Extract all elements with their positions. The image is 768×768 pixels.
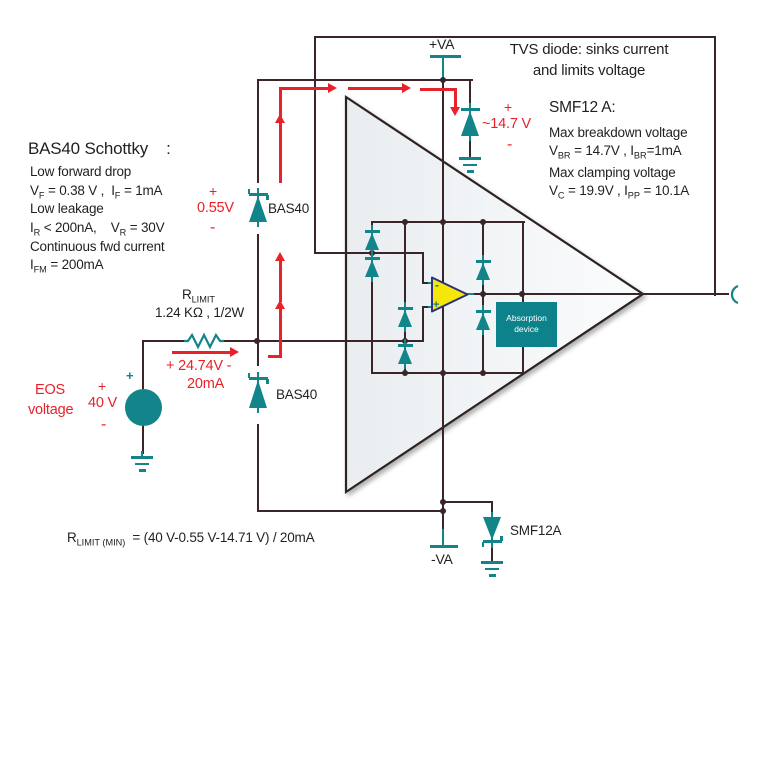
absorption-label-line2: device: [496, 324, 557, 335]
resistor-zigzag: [184, 335, 224, 347]
junction-dot: [440, 370, 446, 376]
va-plus-bar: [430, 55, 461, 58]
current-path-line: [348, 87, 404, 90]
smf-note-line1: Max breakdown voltage: [549, 126, 687, 140]
circuit-wire: [466, 293, 729, 295]
current-path-line: [279, 258, 282, 302]
circuit-wire: [714, 36, 716, 296]
junction-dot: [440, 499, 446, 505]
negative-rail-label: -VA: [431, 552, 453, 567]
circuit-wire: [442, 79, 444, 531]
circuit-wire: [371, 274, 373, 373]
current-path-line: [279, 87, 329, 90]
current-path-line: [279, 87, 282, 183]
absorption-label-line1: Absorption: [496, 313, 557, 324]
current-amps-label: 20mA: [187, 377, 224, 392]
ground-symbol: [467, 170, 474, 173]
rlimit-value: 1.24 KΩ , 1/2W: [155, 306, 244, 320]
circuit-wire: [422, 307, 424, 342]
bas40-note-line2: VF = 0.38 V , IF = 1mA: [30, 184, 162, 201]
junction-dot: [519, 291, 525, 297]
current-arrowhead: [230, 347, 239, 357]
current-arrowhead: [402, 83, 411, 93]
ground-symbol: [139, 469, 146, 472]
current-arrowhead: [275, 300, 285, 309]
circuit-wire: [469, 79, 471, 105]
smf-note-line2: VBR = 14.7V , IBR=1mA: [549, 144, 681, 161]
ground-symbol: [135, 463, 149, 466]
tvs-clamp-value: ~14.7 V: [482, 117, 531, 132]
current-path-line: [279, 303, 282, 357]
eos-minus: -: [101, 417, 106, 434]
tvs-note-line1: TVS diode: sinks current: [500, 42, 678, 58]
amplifier-triangle: [0, 0, 768, 768]
junction-dot: [402, 219, 408, 225]
tvs-note-line2: and limits voltage: [500, 63, 678, 79]
smf12a-diode-triangle: [483, 517, 501, 540]
internal-diode-triangle: [398, 310, 412, 327]
circuit-wire: [371, 221, 525, 223]
bas40-bottom-label: BAS40: [276, 388, 317, 402]
circuit-wire: [257, 510, 445, 512]
bas40-top-plus: +: [209, 184, 217, 199]
circuit-wire: [442, 501, 493, 503]
circuit-wire: [404, 221, 406, 309]
circuit-wire: [142, 424, 144, 454]
ground-symbol: [489, 574, 496, 577]
smf12a-diode-hook-left: [482, 542, 485, 547]
bas40-diode-top-hook-left: [248, 189, 251, 194]
current-arrowhead: [450, 107, 460, 116]
rlimit-formula: RLIMIT (MIN) = (40 V-0.55 V-14.71 V) / 2…: [67, 531, 314, 548]
circuit-wire: [314, 36, 316, 254]
internal-diode-triangle: [398, 347, 412, 364]
current-path-line: [454, 88, 457, 109]
output-terminal: [732, 286, 738, 303]
bas40-top-label: BAS40: [268, 202, 309, 216]
bas40-diode-top-triangle: [249, 196, 267, 222]
tvs-diode-top-triangle: [461, 111, 479, 136]
teal-wire: [466, 293, 474, 295]
ground-symbol: [131, 456, 153, 459]
ground-symbol: [463, 164, 477, 167]
junction-dot: [402, 370, 408, 376]
internal-diode-triangle: [476, 263, 490, 280]
eos-label-line1: EOS: [35, 383, 65, 398]
eos-value: 40 V: [88, 396, 117, 411]
opamp-noninverting-mark: +: [433, 299, 439, 311]
rlimit-name: RLIMIT: [182, 288, 215, 305]
teal-wire: [428, 282, 433, 284]
source-plus-mark: +: [126, 369, 133, 383]
circuit-wire: [257, 424, 259, 512]
va-minus-bar: [430, 545, 458, 548]
eos-plus: +: [98, 379, 106, 394]
bas40-note-line1: Low forward drop: [30, 165, 131, 179]
smf-note-line4: VC = 19.9V , IPP = 10.1A: [549, 184, 689, 201]
tvs-clamp-minus: -: [507, 137, 512, 154]
bas40-note-title: BAS40 Schottky :: [28, 140, 171, 158]
circuit-wire: [142, 340, 144, 391]
eos-protection-circuit-diagram: Absorption device BAS40 Schottky : Low f…: [0, 0, 768, 768]
current-arrowhead: [328, 83, 337, 93]
smf12a-diode-bar: [483, 540, 502, 543]
junction-dot: [480, 219, 486, 225]
smf12a-label: SMF12A: [510, 524, 561, 538]
circuit-wire: [371, 372, 525, 374]
ground-symbol: [481, 561, 503, 564]
bas40-diode-bottom-hook-right: [266, 379, 269, 384]
circuit-wire: [222, 340, 424, 342]
circuit-wire: [257, 79, 259, 183]
current-arrowhead: [275, 252, 285, 261]
bas40-note-line3: Low leakage: [30, 202, 104, 216]
circuit-wire: [314, 36, 716, 38]
bas40-note-line5: Continuous fwd current: [30, 240, 164, 254]
bas40-note-line4: IR < 200nA, VR = 30V: [30, 221, 164, 238]
current-path-line: [420, 88, 456, 91]
ground-symbol: [485, 568, 499, 571]
smf-note-title: SMF12 A:: [549, 100, 615, 116]
ground-symbol: [459, 157, 481, 160]
absorption-device-box: Absorption device: [496, 302, 557, 347]
overlay-symbols: [0, 0, 768, 768]
circuit-wire: [422, 252, 424, 284]
junction-dot: [480, 291, 486, 297]
junction-dot: [440, 219, 446, 225]
bas40-diode-bottom-hook-left: [248, 373, 251, 378]
bas40-note-line6: IFM = 200mA: [30, 258, 103, 275]
junction-dot: [254, 338, 260, 344]
current-voltage-label: + 24.74V -: [166, 359, 231, 374]
internal-diode-triangle: [365, 260, 379, 277]
positive-rail-label: +VA: [429, 37, 454, 52]
opamp-inverting-mark: -: [435, 278, 439, 292]
circuit-wire: [522, 345, 524, 373]
current-path-line: [172, 351, 230, 354]
eos-voltage-source: [125, 389, 162, 426]
bas40-top-minus: -: [210, 220, 215, 237]
bas40-diode-top-hook-right: [266, 195, 269, 200]
current-arrowhead: [275, 114, 285, 123]
circuit-wire: [142, 340, 185, 342]
circuit-wire: [257, 234, 259, 366]
junction-dot: [440, 77, 446, 83]
junction-dot: [480, 370, 486, 376]
internal-diode-triangle: [365, 233, 379, 250]
junction-dot: [440, 508, 446, 514]
eos-label-line2: voltage: [28, 403, 73, 418]
bas40-top-value: 0.55V: [197, 201, 234, 216]
bas40-diode-bottom-triangle: [249, 380, 267, 408]
tvs-clamp-plus: +: [504, 100, 512, 115]
internal-diode-triangle: [476, 313, 490, 330]
smf12a-diode-hook-right: [500, 536, 503, 541]
smf-note-line3: Max clamping voltage: [549, 166, 676, 180]
